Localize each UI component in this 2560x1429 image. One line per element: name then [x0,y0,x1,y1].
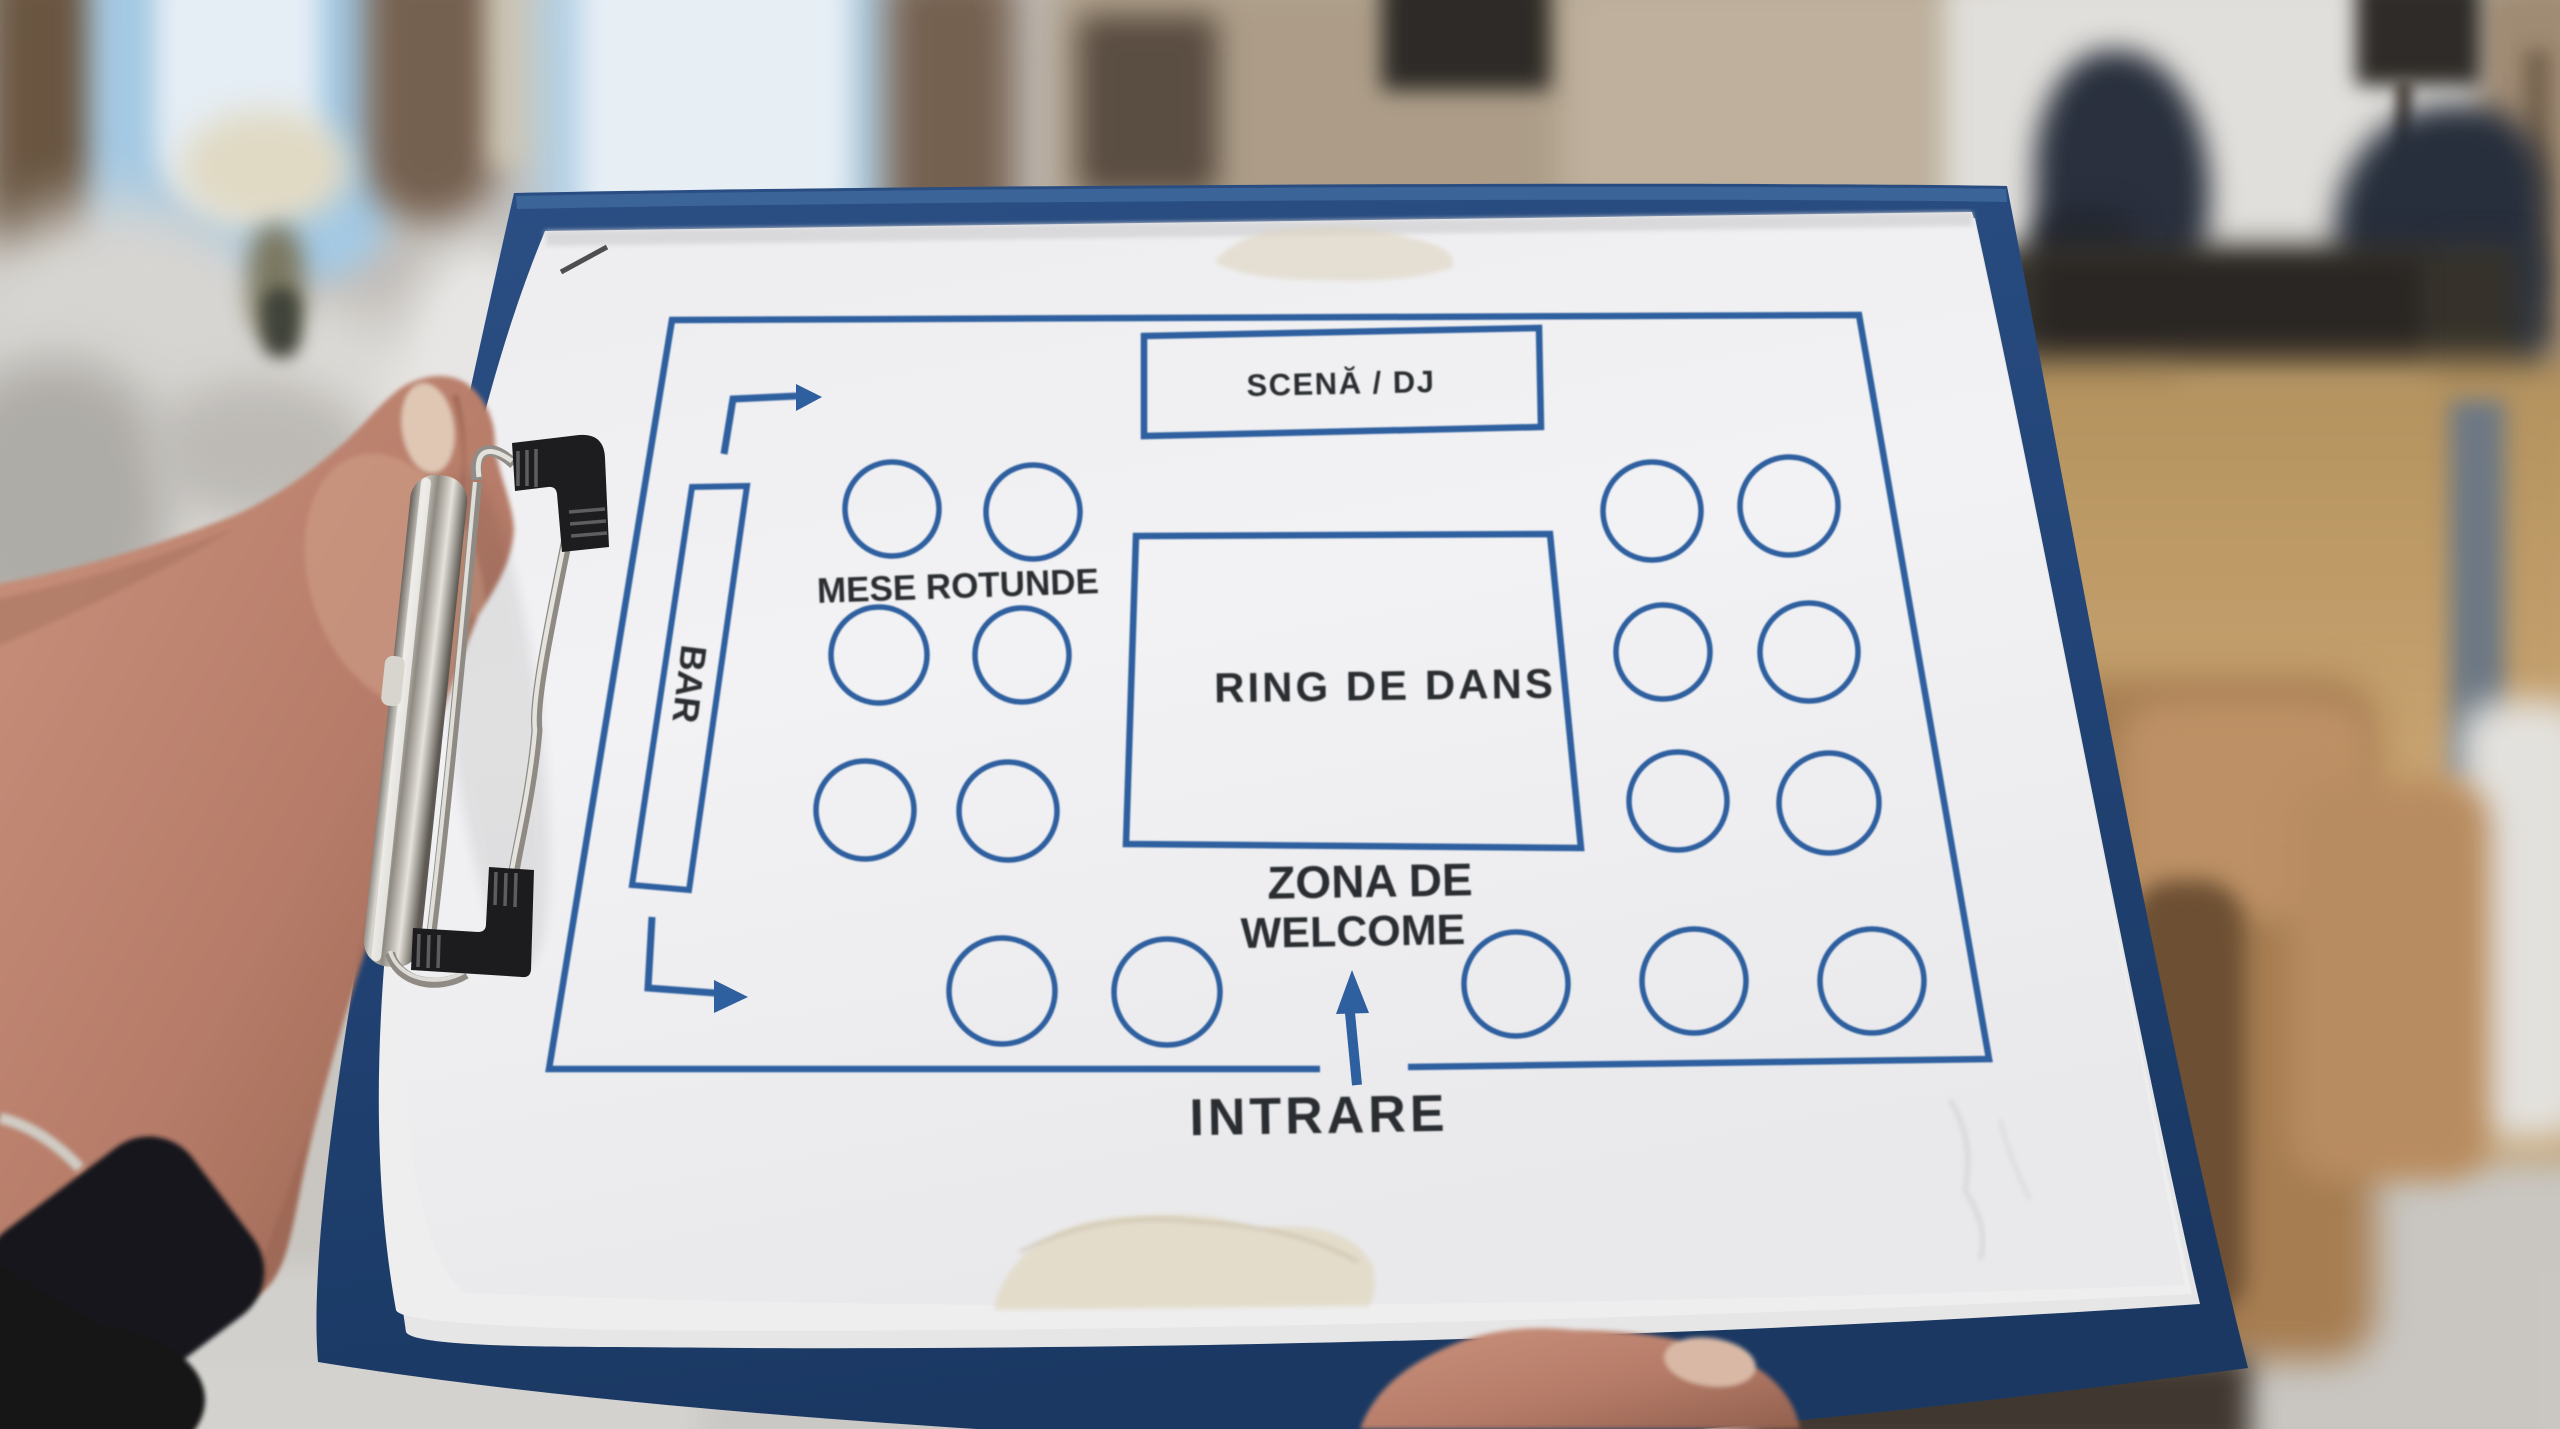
svg-text:ZONA DE: ZONA DE [1267,853,1473,909]
svg-text:RING DE DANS: RING DE DANS [1214,660,1556,712]
svg-text:WELCOME: WELCOME [1240,906,1465,958]
svg-text:INTRARE: INTRARE [1189,1085,1449,1148]
svg-text:SCENĂ / DJ: SCENĂ / DJ [1246,364,1436,403]
